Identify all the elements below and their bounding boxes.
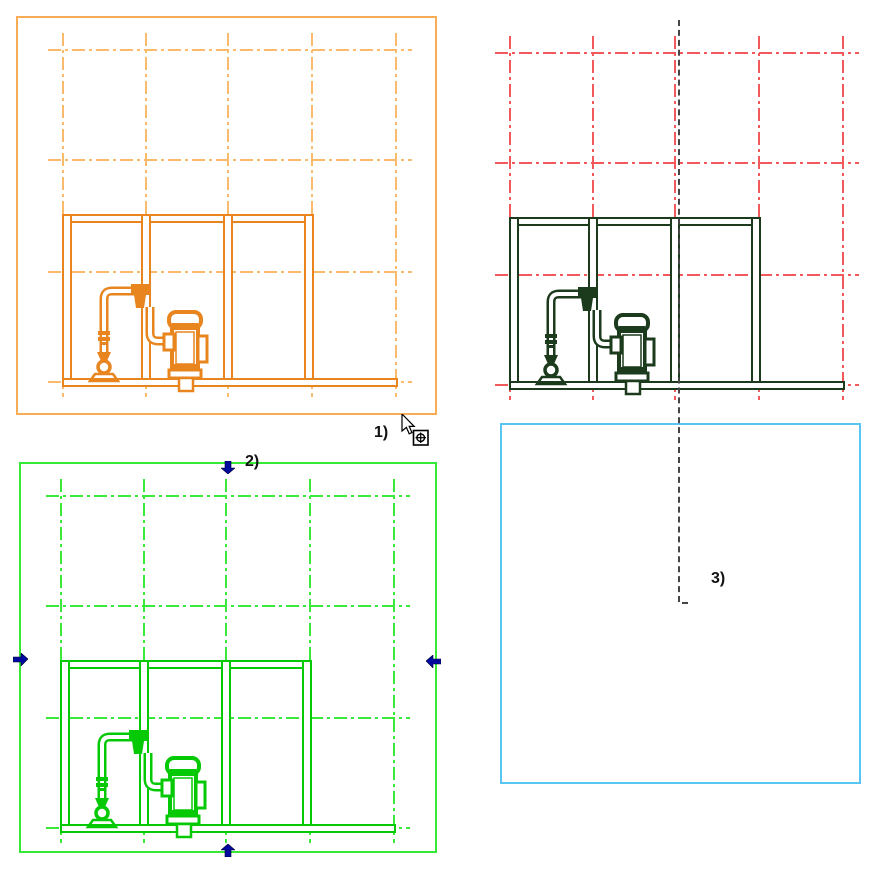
mouse-cursor-icon (401, 414, 433, 448)
step-label-2: 2) (245, 454, 259, 470)
canvas: 1) 2) 3) (0, 0, 883, 869)
viewport-4-empty-frame[interactable] (500, 423, 861, 784)
viewport-3-pump-station-drawing[interactable] (0, 446, 438, 856)
stretch-handle-left-arrow-icon[interactable] (426, 655, 441, 668)
viewport-1-pump-station-drawing[interactable] (0, 0, 440, 410)
reference-dashed-line (678, 20, 680, 602)
reference-line-end-tick (682, 602, 688, 604)
stretch-handle-up-arrow-icon[interactable] (221, 844, 235, 857)
stretch-handle-right-arrow-icon[interactable] (13, 653, 28, 666)
stretch-handle-down-arrow-icon[interactable] (221, 461, 235, 474)
step-label-3: 3) (711, 571, 725, 587)
viewport-2-pump-station-drawing[interactable] (447, 3, 883, 413)
step-label-1: 1) (374, 425, 388, 441)
